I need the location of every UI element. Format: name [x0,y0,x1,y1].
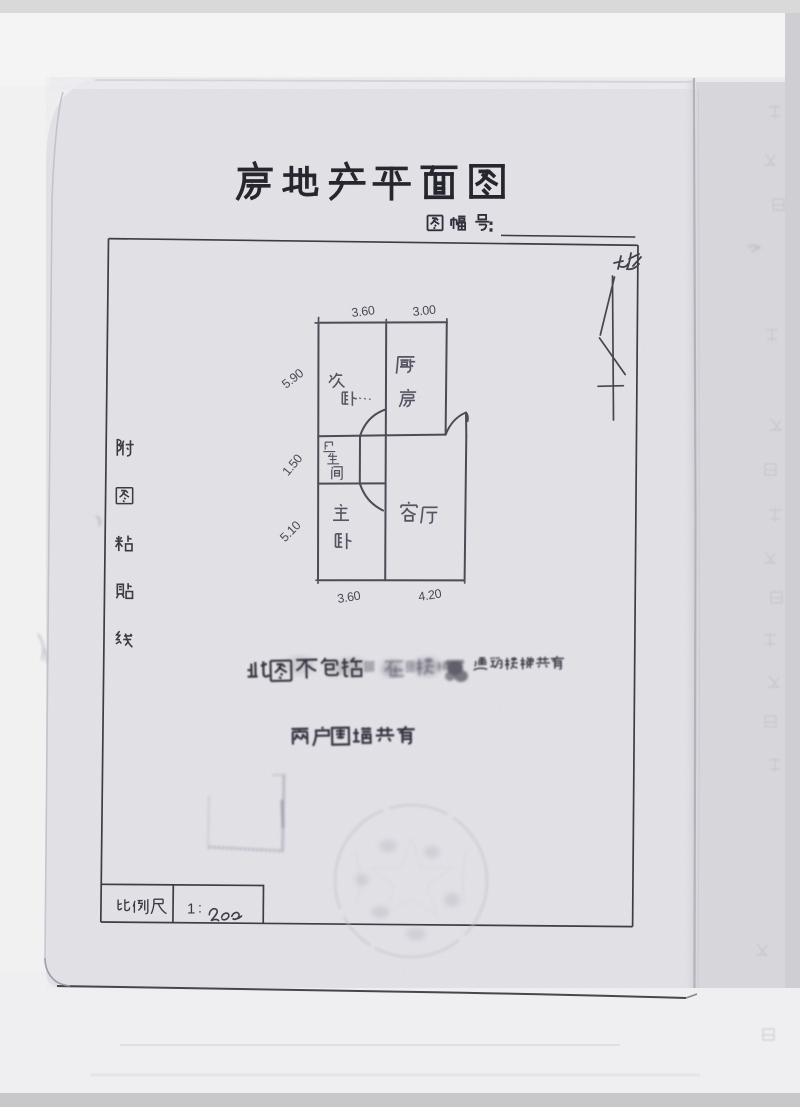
svg-text:3.00: 3.00 [412,303,437,319]
svg-text:3.60: 3.60 [351,303,376,320]
svg-text::: : [198,900,202,916]
svg-text:1: 1 [187,901,195,918]
